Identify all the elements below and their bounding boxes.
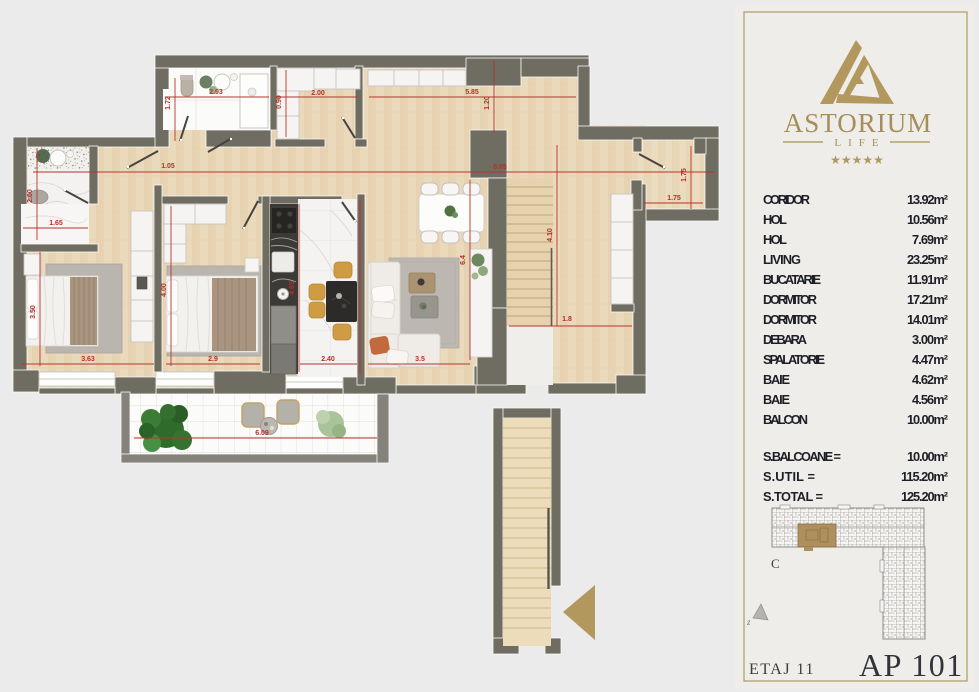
svg-text:1.75: 1.75 xyxy=(667,195,681,202)
svg-text:LIFE: LIFE xyxy=(834,137,885,149)
svg-text:13.92m²: 13.92m² xyxy=(907,192,948,207)
svg-text:DORMITOR: DORMITOR xyxy=(763,292,817,307)
svg-text:LIVING: LIVING xyxy=(763,252,801,267)
svg-text:CORIDOR: CORIDOR xyxy=(763,192,810,207)
svg-text:S.BALCOANE =: S.BALCOANE = xyxy=(763,449,841,464)
svg-text:6.09: 6.09 xyxy=(255,430,269,437)
svg-text:HOL: HOL xyxy=(763,212,787,227)
svg-text:BALCON: BALCON xyxy=(763,412,808,427)
svg-text:14.01m²: 14.01m² xyxy=(907,312,948,327)
svg-text:0.90: 0.90 xyxy=(276,95,283,109)
svg-text:ASTORIUM: ASTORIUM xyxy=(784,108,933,138)
svg-text:7.69m²: 7.69m² xyxy=(912,232,948,247)
svg-text:BAIE: BAIE xyxy=(763,372,790,387)
svg-text:3.5: 3.5 xyxy=(415,356,425,363)
svg-text:z: z xyxy=(746,617,751,627)
svg-text:4.65: 4.65 xyxy=(289,281,296,295)
svg-text:5.85: 5.85 xyxy=(465,89,479,96)
svg-text:3.50: 3.50 xyxy=(30,305,37,319)
svg-text:2.40: 2.40 xyxy=(321,356,335,363)
svg-text:11.91m²: 11.91m² xyxy=(907,272,948,287)
svg-text:4.62m²: 4.62m² xyxy=(912,372,948,387)
svg-text:2.93: 2.93 xyxy=(209,89,223,96)
svg-text:1.05: 1.05 xyxy=(161,163,175,170)
svg-text:1.75: 1.75 xyxy=(681,168,688,182)
svg-text:10.00m²: 10.00m² xyxy=(907,412,948,427)
svg-text:4.00: 4.00 xyxy=(161,283,168,297)
svg-text:3.63: 3.63 xyxy=(81,356,95,363)
svg-text:★★★★★: ★★★★★ xyxy=(830,153,884,167)
svg-text:S.UTIL =: S.UTIL = xyxy=(763,469,815,484)
svg-text:4.56m²: 4.56m² xyxy=(912,392,948,407)
svg-text:1.72: 1.72 xyxy=(165,96,172,110)
svg-text:4.47m²: 4.47m² xyxy=(912,352,948,367)
svg-text:DORMITOR: DORMITOR xyxy=(763,312,817,327)
svg-text:3.00m²: 3.00m² xyxy=(912,332,948,347)
svg-text:23.25m²: 23.25m² xyxy=(907,252,948,267)
svg-text:ETAJ 11: ETAJ 11 xyxy=(749,661,815,678)
svg-text:BAIE: BAIE xyxy=(763,392,790,407)
svg-text:AP 101: AP 101 xyxy=(859,647,964,683)
svg-text:2.00: 2.00 xyxy=(311,90,325,97)
svg-text:1.20: 1.20 xyxy=(484,96,491,110)
svg-text:10.00m²: 10.00m² xyxy=(907,449,948,464)
svg-text:C: C xyxy=(771,556,780,571)
svg-text:10.56m²: 10.56m² xyxy=(907,212,948,227)
svg-text:S.TOTAL =: S.TOTAL = xyxy=(763,489,823,504)
svg-text:17.21m²: 17.21m² xyxy=(907,292,948,307)
svg-text:4.10: 4.10 xyxy=(547,228,554,242)
svg-text:SPALATORIE: SPALATORIE xyxy=(763,352,825,367)
svg-text:DEBARA: DEBARA xyxy=(763,332,807,347)
svg-text:8.05: 8.05 xyxy=(493,164,507,171)
svg-text:125.20m²: 125.20m² xyxy=(901,489,948,504)
svg-text:BUCATARIE: BUCATARIE xyxy=(763,272,821,287)
svg-text:2.9: 2.9 xyxy=(208,356,218,363)
svg-text:1.65: 1.65 xyxy=(49,220,63,227)
svg-text:115.20m²: 115.20m² xyxy=(901,469,948,484)
svg-text:6.4: 6.4 xyxy=(460,255,467,265)
svg-text:1.8: 1.8 xyxy=(562,316,572,323)
svg-text:HOL: HOL xyxy=(763,232,787,247)
svg-text:2.00: 2.00 xyxy=(27,189,34,203)
